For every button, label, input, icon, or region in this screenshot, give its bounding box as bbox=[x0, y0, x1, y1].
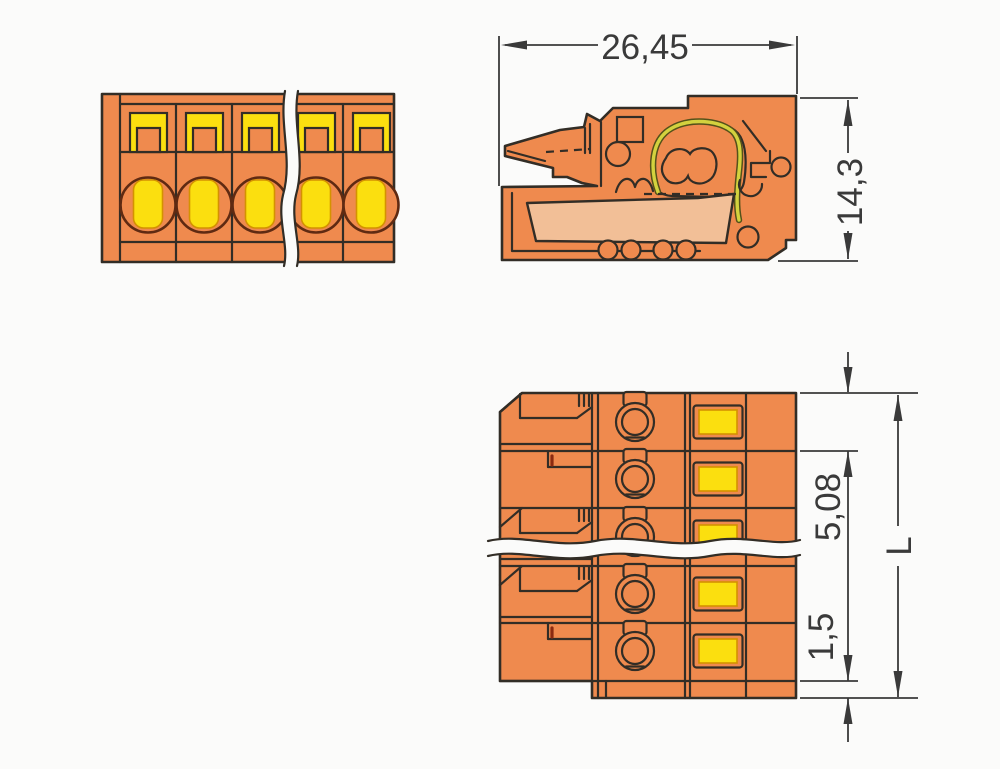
jumper-slot-1 bbox=[694, 406, 743, 439]
top-view bbox=[488, 392, 800, 698]
technical-drawing-page: 26,45 14,3 bbox=[0, 0, 1000, 769]
break-line-top bbox=[488, 539, 800, 559]
overall-height-label: 14,3 bbox=[831, 158, 870, 226]
total-length-label: L bbox=[880, 536, 919, 555]
jumper-slot-5 bbox=[694, 635, 743, 668]
test-slot bbox=[617, 117, 643, 142]
end-offset-label: 1,5 bbox=[802, 613, 841, 662]
conductor-funnel bbox=[527, 194, 734, 243]
clamp-island bbox=[662, 148, 717, 183]
front-view bbox=[102, 91, 399, 266]
pole-pitch-label: 5,08 bbox=[809, 473, 848, 541]
jumper-slot-2 bbox=[694, 463, 743, 496]
jumper-slot-4 bbox=[694, 578, 743, 611]
side-view bbox=[502, 96, 796, 260]
dimension-total-length: L bbox=[880, 395, 919, 697]
overall-width-label: 26,45 bbox=[601, 28, 689, 67]
technical-drawing-canvas: 26,45 14,3 bbox=[0, 0, 1000, 769]
